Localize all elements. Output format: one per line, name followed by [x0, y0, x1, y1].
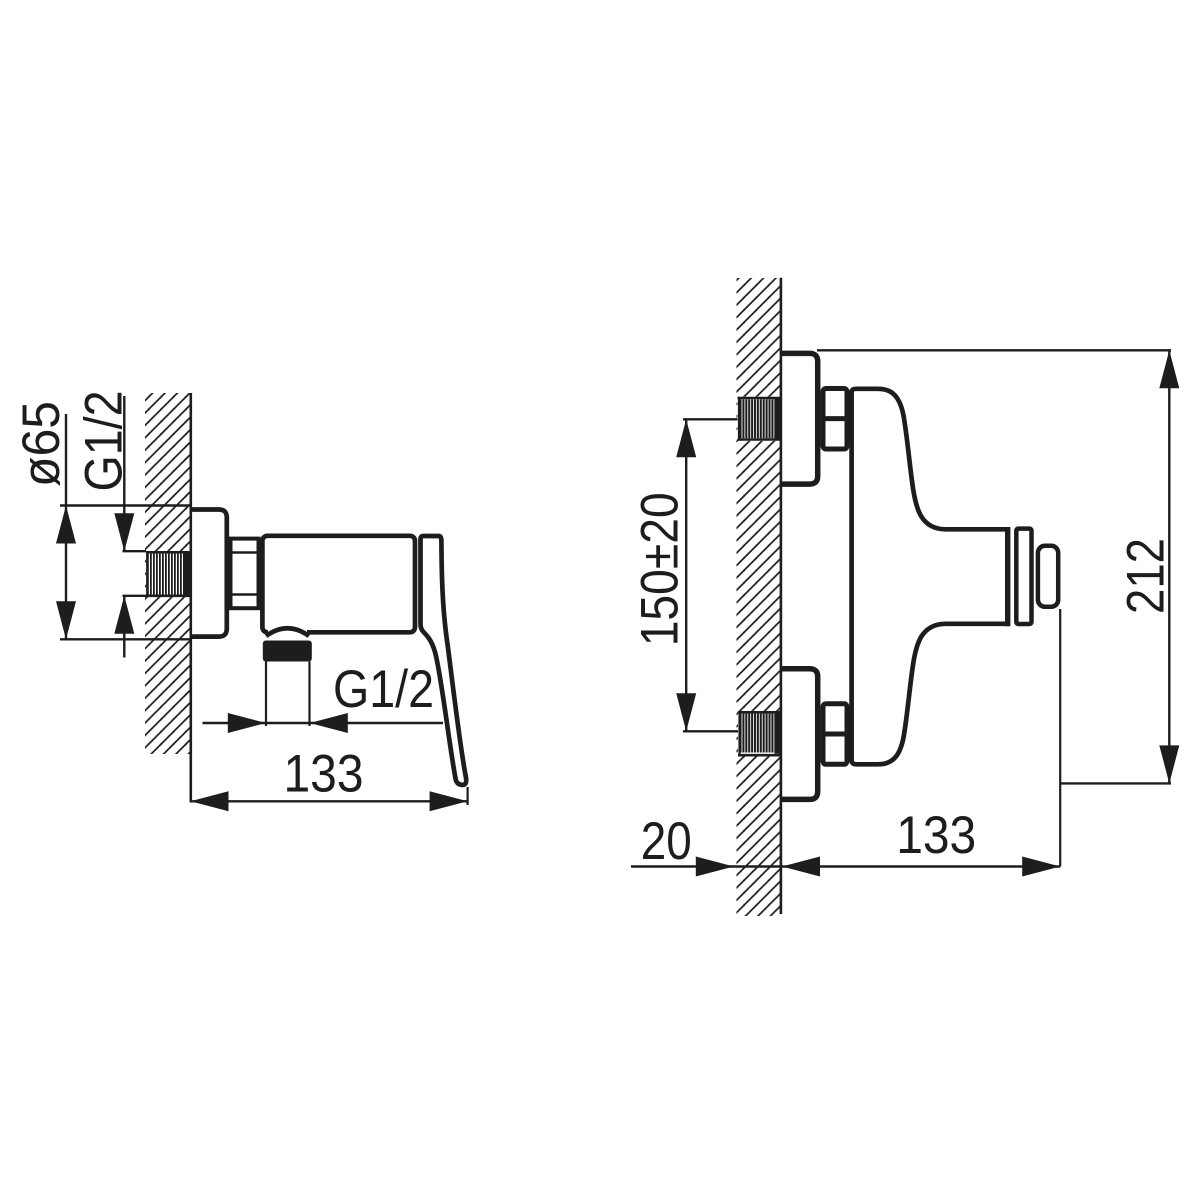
svg-text:G1/2: G1/2: [75, 391, 134, 492]
svg-text:ø65: ø65: [12, 401, 71, 487]
svg-text:G1/2: G1/2: [333, 660, 434, 719]
svg-text:20: 20: [641, 812, 692, 871]
svg-text:133: 133: [284, 745, 364, 804]
svg-text:150±20: 150±20: [631, 492, 690, 646]
svg-text:133: 133: [896, 806, 976, 865]
svg-text:212: 212: [1117, 538, 1176, 614]
